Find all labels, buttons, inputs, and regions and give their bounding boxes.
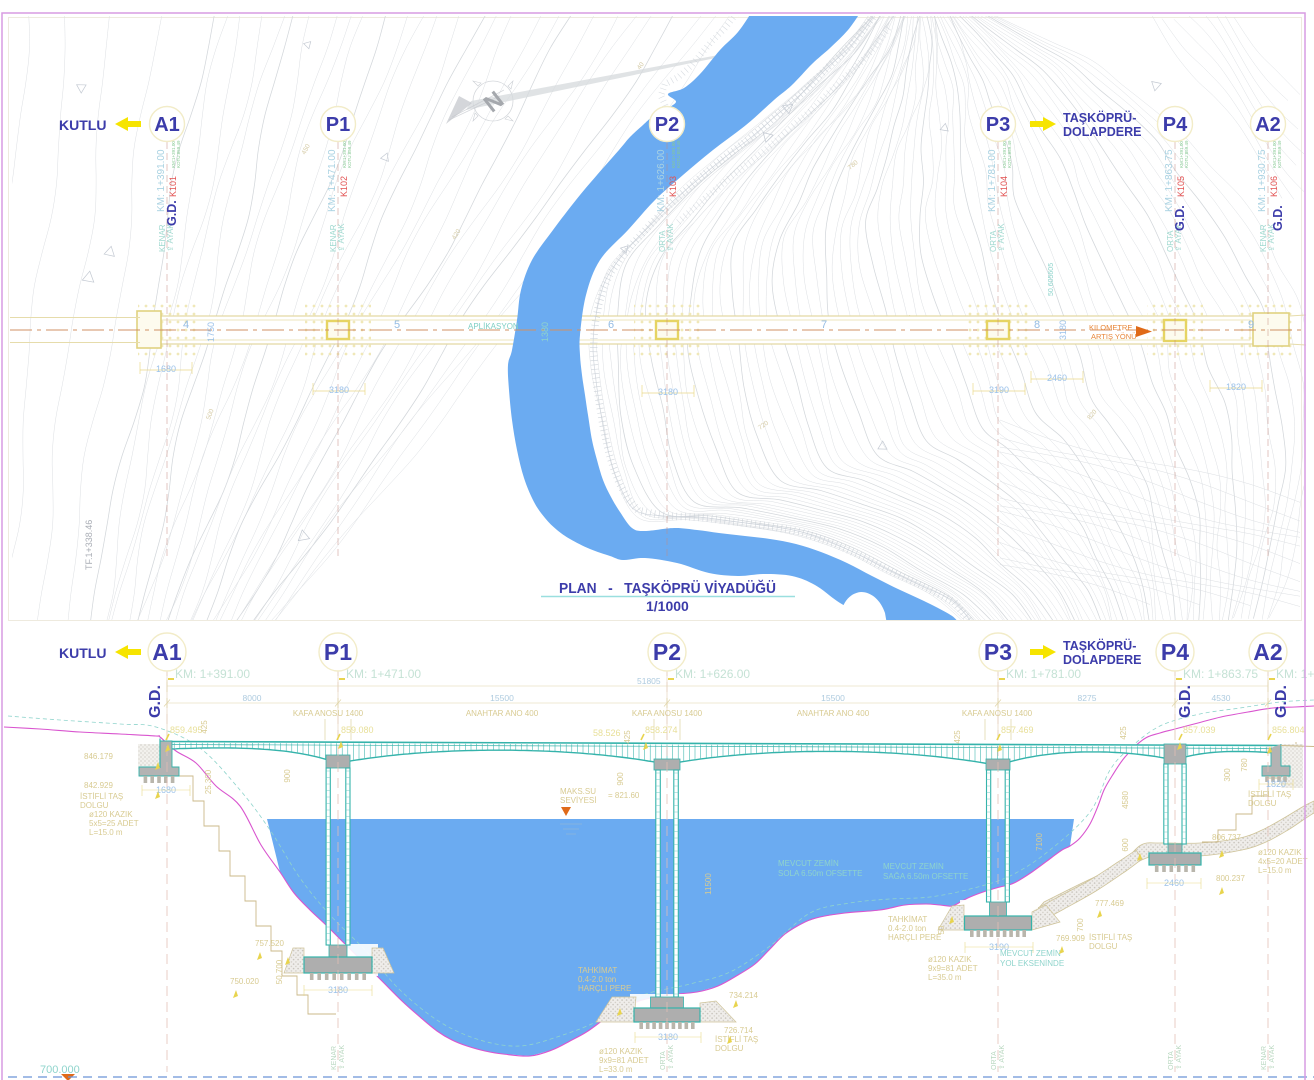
svg-text:0.4-2.0 ton: 0.4-2.0 ton [888, 924, 926, 933]
svg-text:700: 700 [1076, 918, 1085, 932]
svg-text:HARÇLI PERE: HARÇLI PERE [888, 933, 941, 942]
svg-text:ARTIŞ YÖNÜ: ARTIŞ YÖNÜ [1091, 332, 1137, 341]
svg-text:HARÇLI PERE: HARÇLI PERE [578, 984, 631, 993]
svg-text:900: 900 [616, 772, 625, 786]
svg-text:KOTU:859.49: KOTU:859.49 [1007, 140, 1012, 168]
svg-text:800.237: 800.237 [1216, 874, 1245, 883]
svg-text:2460: 2460 [1047, 373, 1067, 383]
svg-text:İSTİFLİ TAŞ: İSTİFLİ TAŞ [1089, 933, 1132, 942]
svg-text:KENAR: KENAR [1261, 1046, 1268, 1070]
svg-text:ø120 KAZIK: ø120 KAZIK [89, 810, 133, 819]
svg-text:300: 300 [1223, 768, 1232, 782]
svg-text:KM: 1+626.00: KM: 1+626.00 [675, 667, 750, 681]
svg-text:859.080: 859.080 [341, 725, 374, 735]
svg-text:7100: 7100 [1035, 833, 1044, 851]
svg-text:425: 425 [953, 730, 962, 744]
svg-text:8275: 8275 [1078, 693, 1097, 703]
svg-text:806.737: 806.737 [1212, 833, 1241, 842]
svg-text:⇪ AYAK: ⇪ AYAK [666, 223, 675, 252]
svg-text:P2: P2 [655, 114, 679, 136]
svg-text:51805: 51805 [637, 676, 661, 686]
svg-text:P3: P3 [984, 639, 1012, 665]
svg-text:L=33.0 m: L=33.0 m [599, 1065, 633, 1074]
svg-text:KM: 1+781.00: KM: 1+781.00 [987, 149, 998, 212]
svg-text:= 821.60: = 821.60 [608, 791, 640, 800]
svg-text:DOLGU: DOLGU [1248, 799, 1277, 808]
svg-text:757.520: 757.520 [255, 939, 284, 948]
svg-text:KM: 1+930.75: KM: 1+930.75 [1257, 149, 1268, 212]
svg-text:900: 900 [283, 769, 292, 783]
svg-text:7: 7 [821, 319, 827, 331]
svg-text:MEVCUT ZEMİN: MEVCUT ZEMİN [778, 859, 839, 868]
svg-text:58.526: 58.526 [593, 728, 621, 738]
svg-text:APLİKASYON: APLİKASYON [468, 322, 519, 331]
svg-text:KAFA ANOSU 1400: KAFA ANOSU 1400 [962, 709, 1033, 718]
svg-text:TAHKİMAT: TAHKİMAT [578, 966, 617, 975]
svg-text:G.D.: G.D. [1273, 685, 1290, 718]
svg-text:KOTU:859.49: KOTU:859.49 [347, 140, 352, 168]
svg-text:K106: K106 [1269, 176, 1279, 197]
svg-text:858.274: 858.274 [645, 725, 678, 735]
svg-text:MEVCUT ZEMİN: MEVCUT ZEMİN [883, 862, 944, 871]
svg-text:G.D.: G.D. [147, 685, 164, 718]
svg-text:1750: 1750 [206, 322, 216, 342]
svg-text:1820: 1820 [1226, 382, 1246, 392]
svg-text:4580: 4580 [1121, 791, 1130, 809]
svg-text:K105: K105 [1176, 176, 1186, 197]
svg-text:TAŞKÖPRÜ-: TAŞKÖPRÜ- [1063, 110, 1136, 125]
svg-text:MEVCUT ZEMİN: MEVCUT ZEMİN [1000, 949, 1061, 958]
svg-text:A2: A2 [1253, 639, 1282, 665]
svg-text:ORTA: ORTA [1168, 1051, 1175, 1070]
svg-text:KOTU:859.49: KOTU:859.49 [1184, 140, 1189, 168]
svg-text:⇪ AYAK: ⇪ AYAK [166, 223, 175, 252]
svg-text:DOLGU: DOLGU [1089, 942, 1118, 951]
svg-text:İSTİFLİ TAŞ: İSTİFLİ TAŞ [1248, 790, 1291, 799]
svg-text:ANAHTAR ANO 400: ANAHTAR ANO 400 [797, 709, 870, 718]
svg-text:4x5=20 ADET: 4x5=20 ADET [1258, 857, 1308, 866]
svg-text:KENAR: KENAR [331, 1046, 338, 1070]
svg-text:846.179: 846.179 [84, 752, 113, 761]
svg-text:DOLAPDERE: DOLAPDERE [1063, 653, 1141, 667]
svg-text:KM: 1+391.00: KM: 1+391.00 [175, 667, 250, 681]
svg-text:1380: 1380 [540, 322, 550, 342]
svg-text:PLAN - TAŞKÖPRÜ VİYADÜĞÜ: PLAN - TAŞKÖPRÜ VİYADÜĞÜ [559, 579, 776, 597]
svg-text:⇪ AYAK: ⇪ AYAK [997, 223, 1006, 252]
svg-text:600: 600 [1121, 838, 1130, 852]
svg-text:857.039: 857.039 [1183, 725, 1216, 735]
svg-text:SOLA 6.50m OFSETTE: SOLA 6.50m OFSETTE [778, 869, 862, 878]
svg-text:G.D.: G.D. [1271, 205, 1285, 231]
svg-text:769.909: 769.909 [1056, 934, 1085, 943]
svg-text:L=15.0 m: L=15.0 m [1258, 866, 1292, 875]
svg-text:DOLGU: DOLGU [715, 1044, 744, 1053]
svg-text:ORTA: ORTA [660, 1051, 667, 1070]
svg-text:⇪ AYAK: ⇪ AYAK [337, 223, 346, 252]
svg-text:0.4-2.0 ton: 0.4-2.0 ton [578, 975, 616, 984]
svg-text:KAFA ANOSU 1400: KAFA ANOSU 1400 [293, 709, 364, 718]
svg-text:YOL EKSENİNDE: YOL EKSENİNDE [1000, 959, 1064, 968]
svg-text:G.D.: G.D. [1177, 685, 1194, 718]
svg-text:P4: P4 [1161, 639, 1189, 665]
svg-text:3180: 3180 [1058, 320, 1068, 340]
svg-text:425: 425 [1119, 726, 1128, 740]
svg-text:11500: 11500 [704, 873, 713, 895]
svg-text:50.605605: 50.605605 [1048, 263, 1055, 296]
svg-text:5: 5 [394, 319, 400, 331]
svg-text:MAKS.SU: MAKS.SU [560, 787, 596, 796]
svg-text:8: 8 [1034, 319, 1040, 331]
svg-text:⇪ AYAK: ⇪ AYAK [667, 1045, 675, 1070]
svg-text:KM: 1+471.00: KM: 1+471.00 [346, 667, 421, 681]
svg-text:TAŞKÖPRÜ-: TAŞKÖPRÜ- [1063, 638, 1136, 653]
svg-text:859.495: 859.495 [170, 725, 203, 735]
svg-text:G.D.: G.D. [165, 200, 179, 226]
svg-text:KM: 1+781.00: KM: 1+781.00 [1006, 667, 1081, 681]
svg-text:4530: 4530 [1212, 693, 1231, 703]
svg-text:9: 9 [1248, 319, 1254, 331]
svg-text:P3: P3 [986, 114, 1010, 136]
svg-text:L=15.0 m: L=15.0 m [89, 828, 123, 837]
svg-text:9x9=81 ADET: 9x9=81 ADET [599, 1056, 649, 1065]
svg-text:425: 425 [623, 730, 632, 744]
svg-text:KOTU:859.49: KOTU:859.49 [676, 140, 681, 168]
svg-text:SAĞA 6.50m OFSETTE: SAĞA 6.50m OFSETTE [883, 872, 968, 881]
svg-text:KM: 1+863.75: KM: 1+863.75 [1164, 149, 1175, 212]
svg-text:⇪ AYAK: ⇪ AYAK [338, 1045, 346, 1070]
svg-text:K102: K102 [339, 176, 349, 197]
svg-text:K104: K104 [999, 176, 1009, 197]
svg-text:İSTİFLİ TAŞ: İSTİFLİ TAŞ [80, 792, 123, 801]
svg-text:KOTU:859.49: KOTU:859.49 [176, 140, 181, 168]
svg-text:KM: 1+626.00: KM: 1+626.00 [656, 149, 667, 212]
svg-text:KM: 1+9: KM: 1+9 [1276, 667, 1314, 681]
svg-text:ø120 KAZIK: ø120 KAZIK [599, 1047, 643, 1056]
svg-text:KAFA ANOSU 1400: KAFA ANOSU 1400 [632, 709, 703, 718]
svg-text:TF.1+338.46: TF.1+338.46 [84, 520, 94, 570]
svg-text:15500: 15500 [821, 693, 845, 703]
svg-text:L=35.0 m: L=35.0 m [928, 973, 962, 982]
svg-text:3180: 3180 [658, 387, 678, 397]
svg-text:P1: P1 [326, 114, 350, 136]
svg-text:8000: 8000 [243, 693, 262, 703]
svg-text:50: 50 [937, 925, 946, 934]
svg-text:KUTLU: KUTLU [59, 645, 106, 661]
svg-text:TAHKİMAT: TAHKİMAT [888, 915, 927, 924]
svg-text:777.469: 777.469 [1095, 899, 1124, 908]
svg-text:KM: 1+471.00: KM: 1+471.00 [327, 149, 338, 212]
svg-text:KUTLU: KUTLU [59, 117, 106, 133]
svg-text:G.D.: G.D. [1173, 205, 1187, 231]
svg-text:⇪ AYAK: ⇪ AYAK [998, 1045, 1006, 1070]
svg-text:857.469: 857.469 [1001, 725, 1034, 735]
svg-text:4: 4 [183, 319, 189, 331]
svg-text:9x9=81 ADET: 9x9=81 ADET [928, 964, 978, 973]
svg-text:ø120 KAZIK: ø120 KAZIK [928, 955, 972, 964]
svg-text:726.714: 726.714 [724, 1026, 753, 1035]
svg-text:842.929: 842.929 [84, 781, 113, 790]
svg-text:KOTU:859.49: KOTU:859.49 [1277, 140, 1282, 168]
svg-text:İSTİFLİ TAŞ: İSTİFLİ TAŞ [715, 1035, 758, 1044]
svg-text:3190: 3190 [989, 385, 1009, 395]
svg-text:1/1000: 1/1000 [646, 598, 689, 614]
svg-text:SEVİYESİ: SEVİYESİ [560, 796, 596, 805]
svg-text:750.020: 750.020 [230, 977, 259, 986]
svg-text:734.214: 734.214 [729, 991, 758, 1000]
svg-text:5x5=25 ADET: 5x5=25 ADET [89, 819, 139, 828]
svg-text:⇪ AYAK: ⇪ AYAK [1268, 1045, 1276, 1070]
svg-text:KM: 1+863.75: KM: 1+863.75 [1183, 667, 1258, 681]
svg-text:ORTA: ORTA [991, 1051, 998, 1070]
svg-text:ANAHTAR ANO 400: ANAHTAR ANO 400 [466, 709, 539, 718]
svg-text:P1: P1 [324, 639, 352, 665]
svg-text:A2: A2 [1255, 114, 1281, 136]
svg-text:6: 6 [608, 319, 614, 331]
svg-text:50.700: 50.700 [275, 959, 284, 984]
svg-text:425: 425 [200, 720, 209, 734]
svg-text:A1: A1 [152, 639, 182, 665]
svg-text:⇪ AYAK: ⇪ AYAK [1175, 1045, 1183, 1070]
svg-text:K103: K103 [668, 176, 678, 197]
svg-text:15500: 15500 [490, 693, 514, 703]
svg-text:ø120 KAZIK: ø120 KAZIK [1258, 848, 1302, 857]
svg-text:1680: 1680 [156, 364, 176, 374]
svg-text:25.300: 25.300 [204, 769, 213, 794]
svg-text:P2: P2 [653, 639, 681, 665]
svg-text:3180: 3180 [329, 385, 349, 395]
svg-text:A1: A1 [154, 114, 180, 136]
svg-text:DOLGU: DOLGU [80, 801, 109, 810]
svg-text:856.804: 856.804 [1272, 725, 1305, 735]
svg-text:P4: P4 [1163, 114, 1188, 136]
svg-text:780: 780 [1240, 758, 1249, 772]
svg-text:K101: K101 [168, 176, 178, 197]
svg-text:KILOMETRE: KILOMETRE [1089, 323, 1132, 332]
svg-text:DOLAPDERE: DOLAPDERE [1063, 125, 1141, 139]
